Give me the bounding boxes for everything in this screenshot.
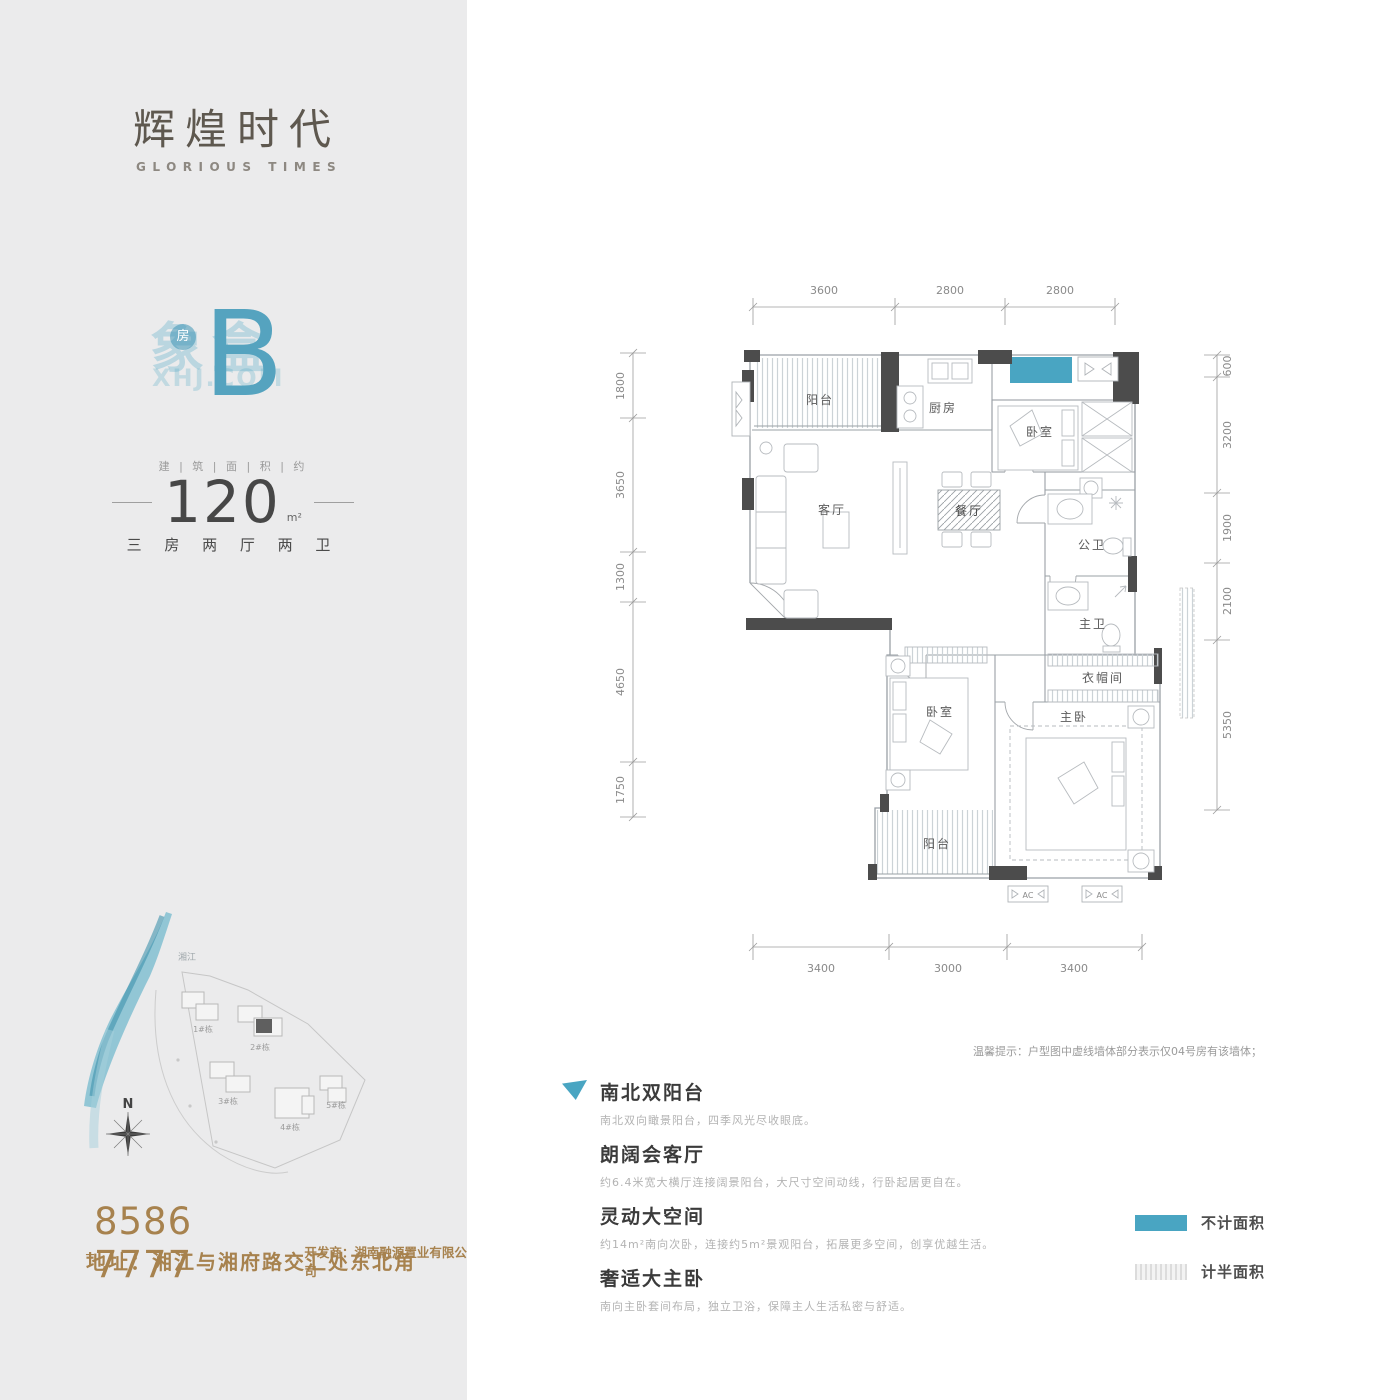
feature-item: 南北双阳台 南北双向瞰景阳台，四季风光尽收眼底。	[600, 1078, 1160, 1128]
area-unit: m²	[287, 511, 302, 524]
feature-desc: 约14m²南向次卧，连接约5m²景观阳台，拓展更多空间，创享优越生活。	[600, 1236, 1160, 1252]
svg-text:1800: 1800	[614, 372, 627, 400]
svg-text:2#栋: 2#栋	[250, 1042, 270, 1052]
left-panel: 辉煌时代 GLORIOUS TIMES 象盒 XHJ.COM 房 B 建 | 筑…	[0, 0, 467, 1400]
feature-desc: 南北双向瞰景阳台，四季风光尽收眼底。	[600, 1112, 1160, 1128]
room-bedroom-ml: 卧室	[926, 704, 954, 719]
room-bath-public: 公卫	[1078, 538, 1106, 552]
feature-desc: 南向主卧套间布局，独立卫浴，保障主人生活私密与舒适。	[600, 1298, 1160, 1314]
svg-text:1#栋: 1#栋	[193, 1024, 213, 1034]
dash-right	[314, 502, 354, 503]
brand-logo: 辉煌时代	[133, 96, 341, 157]
svg-text:3000: 3000	[934, 962, 962, 975]
area-value-row: 120 m²	[98, 472, 368, 533]
svg-text:4#栋: 4#栋	[280, 1122, 300, 1132]
svg-text:3#栋: 3#栋	[218, 1096, 238, 1106]
flag-icon	[562, 1080, 587, 1100]
svg-text:4650: 4650	[614, 668, 627, 696]
legend-row-nocount: 不计面积	[1135, 1212, 1265, 1233]
site-plan: 湘江 1#栋 2#栋 3#栋 4#栋 5#栋 N	[70, 910, 430, 1190]
svg-text:3200: 3200	[1221, 421, 1234, 449]
site-road	[155, 990, 288, 1173]
watermark-logo-icon: 房	[170, 324, 196, 350]
svg-text:600: 600	[1221, 356, 1234, 377]
feature-item: 灵动大空间 约14m²南向次卧，连接约5m²景观阳台，拓展更多空间，创享优越生活…	[600, 1202, 1160, 1252]
tip-note: 温馨提示：户型图中虚线墙体部分表示仅04号房有该墙体；	[900, 1043, 1262, 1059]
area-value: 120	[164, 472, 281, 533]
svg-text:3600: 3600	[810, 284, 838, 297]
svg-text:2800: 2800	[936, 284, 964, 297]
furniture	[756, 359, 1158, 872]
room-balcony-top: 阳台	[806, 392, 834, 407]
legend: 不计面积 计半面积	[1135, 1212, 1265, 1310]
svg-text:3650: 3650	[614, 471, 627, 499]
feature-title: 南北双阳台	[600, 1078, 1160, 1105]
room-dining: 餐厅	[955, 503, 983, 518]
room-closet: 衣帽间	[1082, 670, 1124, 685]
room-bedroom-tr: 卧室	[1026, 424, 1054, 439]
brand-subtitle: GLORIOUS TIMES	[136, 160, 342, 174]
feature-item: 奢适大主卧 南向主卧套间布局，独立卫浴，保障主人生活私密与舒适。	[600, 1264, 1160, 1314]
feature-desc: 约6.4米宽大横厅连接阔景阳台，大尺寸空间动线，行卧起居更自在。	[600, 1174, 1160, 1190]
feature-item: 朗阔会客厅 约6.4米宽大横厅连接阔景阳台，大尺寸空间动线，行卧起居更自在。	[600, 1140, 1160, 1190]
ac-label-1: AC	[1023, 891, 1034, 900]
feature-title: 灵动大空间	[600, 1202, 1160, 1229]
room-bedroom-master: 主卧	[1060, 710, 1088, 724]
dash-left	[112, 502, 152, 503]
river-label: 湘江	[178, 951, 196, 963]
svg-text:N: N	[123, 1097, 134, 1112]
svg-text:5350: 5350	[1221, 711, 1234, 739]
no-count-area	[1010, 357, 1072, 383]
compass-icon: N	[106, 1097, 150, 1156]
svg-text:1300: 1300	[614, 563, 627, 591]
room-living: 客厅	[818, 502, 846, 517]
half-count-strip	[1180, 588, 1194, 718]
poster: 辉煌时代 GLORIOUS TIMES 象盒 XHJ.COM 房 B 建 | 筑…	[0, 0, 1400, 1400]
highlighted-building	[256, 1019, 272, 1033]
unit-type-letter: B	[203, 295, 284, 413]
legend-row-half: 计半面积	[1135, 1261, 1265, 1282]
feature-title: 朗阔会客厅	[600, 1140, 1160, 1167]
legend-label: 不计面积	[1201, 1212, 1265, 1233]
legend-label: 计半面积	[1201, 1261, 1265, 1282]
floor-plan: 3600 2800 2800 3400 3000 3400 1800 3650 …	[580, 250, 1270, 1030]
svg-text:2800: 2800	[1046, 284, 1074, 297]
svg-text:5#栋: 5#栋	[326, 1100, 346, 1110]
room-kitchen: 厨房	[929, 400, 957, 415]
svg-text:1750: 1750	[614, 776, 627, 804]
address: 地址：湘江与湘府路交汇处东北角	[86, 1246, 416, 1275]
room-balcony-bottom: 阳台	[923, 836, 951, 851]
ac-label-2: AC	[1097, 891, 1108, 900]
room-bath-master: 主卫	[1079, 617, 1107, 631]
svg-text:1900: 1900	[1221, 514, 1234, 542]
svg-text:3400: 3400	[807, 962, 835, 975]
legend-swatch-hatched	[1135, 1264, 1187, 1280]
site-buildings	[182, 992, 346, 1118]
feature-list: 南北双阳台 南北双向瞰景阳台，四季风光尽收眼底。 朗阔会客厅 约6.4米宽大横厅…	[600, 1078, 1160, 1326]
svg-text:3400: 3400	[1060, 962, 1088, 975]
feature-title: 奢适大主卧	[600, 1264, 1160, 1291]
unit-layout: 三 房 两 厅 两 卫	[103, 534, 363, 555]
site-boundary	[182, 972, 365, 1168]
svg-text:2100: 2100	[1221, 587, 1234, 615]
legend-swatch-solid	[1135, 1215, 1187, 1231]
